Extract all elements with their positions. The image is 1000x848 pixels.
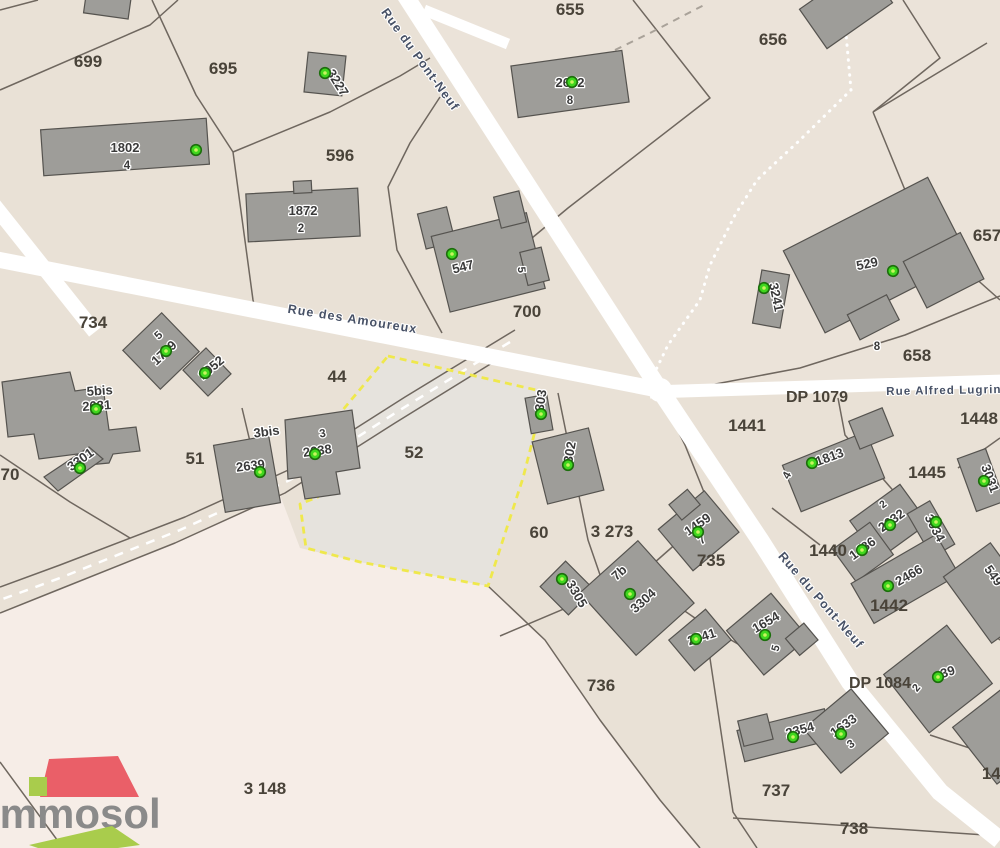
- marker-dot-center: [194, 148, 198, 152]
- parcel-label: 737: [762, 781, 790, 800]
- building-marker[interactable]: [693, 527, 704, 538]
- building-marker[interactable]: [836, 729, 847, 740]
- building: [214, 436, 281, 513]
- building-marker[interactable]: [75, 463, 86, 474]
- parcel-label: 60: [530, 523, 549, 542]
- building-marker[interactable]: [888, 266, 899, 277]
- parcel-label: 736: [587, 676, 615, 695]
- parcel-label: 695: [209, 59, 237, 78]
- parcel-label: 52: [405, 443, 424, 462]
- marker-dot-center: [539, 412, 543, 416]
- building-marker[interactable]: [625, 589, 636, 600]
- building-marker[interactable]: [447, 249, 458, 260]
- marker-dot-center: [982, 479, 986, 483]
- marker-dot-center: [934, 520, 938, 524]
- building-marker[interactable]: [563, 460, 574, 471]
- marker-dot-center: [694, 637, 698, 641]
- building-marker[interactable]: [691, 634, 702, 645]
- building-marker[interactable]: [760, 630, 771, 641]
- marker-dot-center: [203, 371, 207, 375]
- parcel-label: 70: [1, 465, 20, 484]
- marker-dot-center: [886, 584, 890, 588]
- building-marker[interactable]: [320, 68, 331, 79]
- building-label: 2: [298, 223, 304, 235]
- building-marker[interactable]: [255, 467, 266, 478]
- marker-dot-center: [450, 252, 454, 256]
- marker-dot-center: [888, 523, 892, 527]
- building-marker[interactable]: [788, 732, 799, 743]
- road-name-label: Rue Alfred Lugrin: [886, 384, 1000, 398]
- marker-dot-center: [323, 71, 327, 75]
- parcel-label: 700: [513, 302, 541, 321]
- parcel-label: 144: [982, 764, 1000, 783]
- parcel-label: 51: [186, 449, 205, 468]
- parcel-label: 1442: [870, 596, 908, 615]
- building-label: 1802: [111, 140, 140, 155]
- parcel-label: 1445: [908, 463, 946, 482]
- building-marker[interactable]: [200, 368, 211, 379]
- road-junction: [648, 378, 672, 402]
- building-marker[interactable]: [91, 404, 102, 415]
- building-label: 5: [515, 266, 527, 273]
- building-marker[interactable]: [759, 283, 770, 294]
- parcel-label: 658: [903, 346, 931, 365]
- parcel-label: 1440: [809, 541, 847, 560]
- marker-dot-center: [258, 470, 262, 474]
- marker-dot-center: [763, 633, 767, 637]
- marker-dot-center: [791, 735, 795, 739]
- parcel-label: 699: [74, 52, 102, 71]
- building-marker[interactable]: [536, 409, 547, 420]
- building-marker[interactable]: [931, 517, 942, 528]
- building-marker[interactable]: [191, 145, 202, 156]
- parcel-label: 596: [326, 146, 354, 165]
- parcel-label: 738: [840, 819, 868, 838]
- parcel-label: 3 273: [591, 522, 634, 541]
- building-marker[interactable]: [557, 574, 568, 585]
- building-label: 3bis: [253, 423, 281, 441]
- marker-dot-center: [936, 675, 940, 679]
- marker-dot-center: [810, 461, 814, 465]
- logo-wordmark: Immosol: [0, 790, 161, 837]
- building-label: 8: [567, 95, 574, 107]
- route-label: DP 1084: [849, 675, 911, 692]
- parcel-label: 655: [556, 0, 584, 19]
- building-marker[interactable]: [933, 672, 944, 683]
- building-marker[interactable]: [883, 581, 894, 592]
- marker-dot-center: [839, 732, 843, 736]
- marker-dot-center: [560, 577, 564, 581]
- marker-dot-center: [696, 530, 700, 534]
- marker-dot-center: [628, 592, 632, 596]
- building-marker[interactable]: [161, 346, 172, 357]
- marker-dot-center: [313, 452, 317, 456]
- building-label: 1872: [289, 203, 318, 218]
- building-marker[interactable]: [807, 458, 818, 469]
- marker-dot-center: [94, 407, 98, 411]
- parcel-label: 656: [759, 30, 787, 49]
- marker-dot-center: [860, 548, 864, 552]
- parcel-label: 1448: [960, 409, 998, 428]
- building-marker[interactable]: [567, 77, 578, 88]
- parcel-label: 44: [328, 367, 347, 386]
- marker-dot-center: [78, 466, 82, 470]
- marker-dot-center: [570, 80, 574, 84]
- building-label: 4: [124, 160, 131, 172]
- marker-dot-center: [164, 349, 168, 353]
- marker-dot-center: [566, 463, 570, 467]
- cadastral-map[interactable]: 69969565565659665770073465844525170603 2…: [0, 0, 1000, 848]
- map-viewport[interactable]: 69969565565659665770073465844525170603 2…: [0, 0, 1000, 848]
- parcel-label: 3 148: [244, 779, 287, 798]
- parcel-label: 1441: [728, 416, 766, 435]
- building-marker[interactable]: [857, 545, 868, 556]
- building-marker[interactable]: [885, 520, 896, 531]
- building-label: 8: [874, 341, 881, 353]
- parcel-label: 734: [79, 313, 108, 332]
- marker-dot-center: [762, 286, 766, 290]
- parcel-label: 657: [973, 226, 1000, 245]
- parcel-label: 735: [697, 551, 725, 570]
- building-part: [293, 181, 312, 194]
- marker-dot-center: [891, 269, 895, 273]
- building-marker[interactable]: [310, 449, 321, 460]
- building-marker[interactable]: [979, 476, 990, 487]
- route-label: DP 1079: [786, 389, 848, 406]
